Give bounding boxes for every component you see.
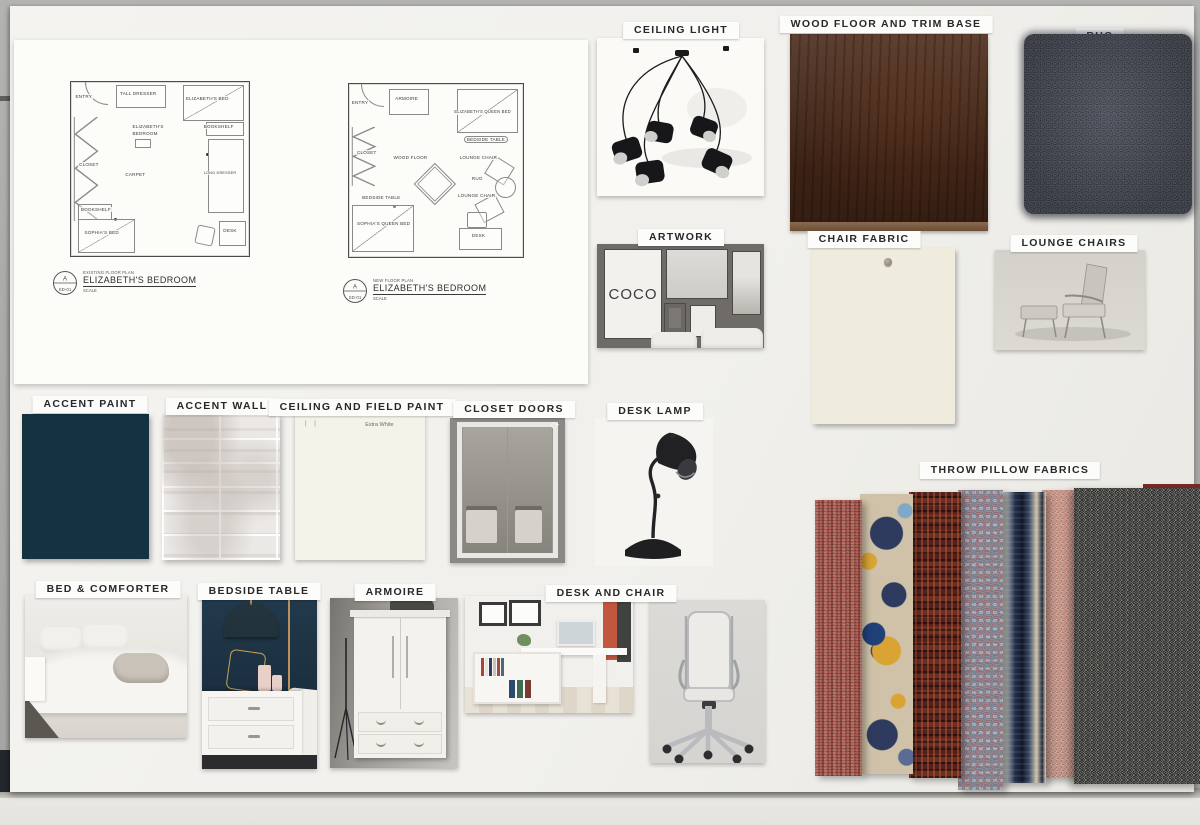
plan-label: RUG <box>471 176 484 181</box>
fabric-swatch-basketweave <box>909 492 961 778</box>
landscape-print <box>733 252 760 314</box>
existing-floor-plan: ENTRY TALL DRESSER ELIZABETH'S BED BOOKS… <box>70 81 250 257</box>
svg-text:A: A <box>353 285 357 291</box>
plan-label: BEDSIDE TABLE <box>361 195 401 200</box>
elizabeths-bed-outline <box>183 85 244 120</box>
closet-doors-photo: ⟳ <box>450 418 565 563</box>
fabric-swatch-floral-medallion <box>860 494 913 774</box>
closet-frame <box>457 422 558 558</box>
rug-sample <box>1024 34 1192 214</box>
svg-text:A: A <box>63 277 67 283</box>
ceiling-field-paint-card: | | Extra White <box>295 414 425 560</box>
pendant-cord <box>288 595 290 691</box>
books <box>481 658 504 676</box>
label-ceiling-field-paint: CEILING AND FIELD PAINT <box>269 399 456 416</box>
drawer <box>358 734 442 754</box>
existing-plan-title-block: A SD-01 EXISTING FLOOR PLAN ELIZABETH'S … <box>52 270 196 296</box>
plan-label: DESK <box>471 233 486 238</box>
white-shelf-unit <box>473 652 561 704</box>
title-text-column: NEW FLOOR PLAN ELIZABETH'S BEDROOM SCALE <box>373 278 486 301</box>
plan-label: ELIZABETH'S BED <box>185 96 230 101</box>
office-chair-photo <box>650 600 765 763</box>
book <box>501 658 504 676</box>
fabric-swatch-ikat-stripe <box>999 492 1046 783</box>
pink-candle <box>258 665 271 691</box>
plan-scale: SCALE <box>83 288 196 293</box>
plan-label: CARPET <box>124 172 146 177</box>
desk-leg-panel <box>593 655 606 703</box>
bedside-table-photo <box>202 595 317 769</box>
horse-print <box>667 250 727 298</box>
wood-floor-sample <box>790 34 988 222</box>
plan-label: CLOSET <box>78 162 100 167</box>
label-armoire: ARMOIRE <box>355 584 436 601</box>
throw-blanket <box>113 653 169 683</box>
nightstand <box>25 657 45 701</box>
cup-pull <box>376 741 386 747</box>
book <box>485 658 488 676</box>
binder <box>509 680 515 698</box>
desk-chair-outline <box>194 225 216 248</box>
plan-label: LONG DRESSER <box>203 171 238 175</box>
title-text-column: EXISTING FLOOR PLAN ELIZABETH'S BEDROOM … <box>83 270 196 293</box>
desk-photo <box>465 596 633 713</box>
mood-board: ENTRY TALL DRESSER ELIZABETH'S BED BOOKS… <box>10 6 1194 792</box>
drawing-mark-icon: A SD-01 <box>52 270 78 296</box>
rotate-view-icon: ⟳ <box>549 421 561 433</box>
office-chair-drawing <box>650 600 765 763</box>
label-bedside-table: BEDSIDE TABLE <box>198 583 321 600</box>
door-handle <box>406 636 408 678</box>
room-tag: ELIZABETH'S <box>132 124 165 129</box>
drawer-pull <box>248 707 260 710</box>
door-handle <box>392 636 394 678</box>
label-bed-comforter: BED & COMFORTER <box>36 581 181 598</box>
wall-frame <box>509 600 541 626</box>
label-desk-and-chair: DESK AND CHAIR <box>546 585 677 602</box>
side-table-circle <box>495 177 516 198</box>
fabric-swatch-geometric-lattice <box>958 490 1003 790</box>
plan-label: BOOKSHELF <box>203 124 235 129</box>
label-wood-floor: WOOD FLOOR AND TRIM BASE <box>780 16 993 33</box>
plan-label: TALL DRESSER <box>119 91 157 96</box>
paint-card-marks: | | <box>305 421 319 427</box>
cup-pull <box>376 719 386 725</box>
plan-title: ELIZABETH'S BEDROOM <box>373 283 486 295</box>
plan-label: ELIZABETH'S QUEEN BED <box>453 110 511 115</box>
pillow <box>651 332 697 348</box>
sophias-queen-bed-outline <box>352 205 413 252</box>
floor-plan-sheet: ENTRY TALL DRESSER ELIZABETH'S BED BOOKS… <box>14 40 588 384</box>
plan-label: WOOD FLOOR <box>393 155 429 160</box>
mirror-panel-left <box>463 427 507 553</box>
lounge-chairs-photo <box>995 250 1145 350</box>
long-dresser-outline <box>208 139 244 212</box>
plan-label: LOUNGE CHAIR <box>457 193 496 198</box>
armoire-photo <box>330 598 458 768</box>
new-floor-plan: ENTRY ARMOIRE ELIZABETH'S QUEEN BED CLOS… <box>348 83 524 258</box>
new-plan-title-block: A SD-01 NEW FLOOR PLAN ELIZABETH'S BEDRO… <box>342 278 486 304</box>
label-accent-paint: ACCENT PAINT <box>33 396 148 413</box>
white-nightstand <box>202 691 302 755</box>
label-chair-fabric: CHAIR FABRIC <box>808 231 921 248</box>
pillow <box>701 328 763 348</box>
svg-text:SD-01: SD-01 <box>59 287 72 292</box>
wall-frame <box>479 602 507 626</box>
monitor <box>557 620 595 646</box>
desk-lamp-photo <box>595 418 713 566</box>
drawer <box>208 725 294 749</box>
plan-label: CLOSET <box>356 150 378 155</box>
plant <box>517 634 531 646</box>
label-accent-wall: ACCENT WALL <box>166 398 279 415</box>
drawing-mark-icon: A SD-01 <box>342 278 368 304</box>
artwork-photo: COCO <box>597 244 764 348</box>
book <box>481 658 484 676</box>
chair-fabric-sample <box>812 248 955 424</box>
plan-label: SOPHIA'S BED <box>83 230 119 235</box>
plan-label: DESK <box>222 228 237 233</box>
label-closet-doors: CLOSET DOORS <box>453 401 575 418</box>
plan-label: BOOKSHELF <box>80 207 112 212</box>
ledge-surface <box>0 798 1200 825</box>
photo-of-mood-board: { "plan_sheet": { "existing": { "subtitl… <box>0 0 1200 825</box>
door-split <box>400 617 401 709</box>
small-frame <box>665 304 685 332</box>
bed-comforter-photo <box>25 595 187 738</box>
plan-label: BEDSIDE TABLE <box>464 136 508 143</box>
drawer <box>208 697 294 721</box>
mirror-panel-right <box>508 427 552 553</box>
label-throw-pillow-fabrics: THROW PILLOW FABRICS <box>920 462 1100 479</box>
wardrobe-cornice <box>350 610 450 617</box>
accent-wall-brick-sample <box>162 414 280 560</box>
ceiling-light-photo <box>597 38 764 196</box>
tall-dresser-outline <box>116 85 166 108</box>
plan-scale: SCALE <box>373 296 486 301</box>
plan-label: ENTRY <box>75 94 94 99</box>
desk-outline <box>459 228 503 251</box>
room-tag: BEDROOM <box>132 131 159 136</box>
paint-name: Extra White <box>365 422 393 428</box>
mirror-reflection-bed <box>466 510 497 543</box>
plan-label: SOPHIA'S QUEEN BED <box>356 221 411 226</box>
binder <box>517 680 523 698</box>
room-tag-box <box>135 139 151 148</box>
drawer <box>358 712 442 732</box>
armoire-outline <box>389 89 429 115</box>
closet-bifold-doors <box>351 127 377 186</box>
cup-pull <box>414 719 424 725</box>
fabric-swatch-woven-stripe <box>815 500 862 776</box>
lounge-chair-drawing <box>995 250 1145 350</box>
fabric-swatch-tweed <box>1074 488 1200 784</box>
wood-plank-edge <box>790 222 988 231</box>
white-wardrobe <box>354 610 446 758</box>
rug-diamond <box>414 163 456 205</box>
patterned-pendant-shade <box>224 603 278 637</box>
label-artwork: ARTWORK <box>638 229 724 246</box>
throw-pillow-fabric-stack <box>803 484 1200 794</box>
label-lounge-chairs: LOUNGE CHAIRS <box>1011 235 1138 252</box>
plan-label: ENTRY <box>351 100 370 105</box>
sophias-bed-outline <box>78 219 135 252</box>
mirror-reflection-bed <box>515 510 541 543</box>
desk-outline <box>219 221 246 246</box>
book <box>489 658 492 676</box>
plan-label: LOUNGE CHAIR <box>459 155 498 160</box>
cup-pull <box>414 741 424 747</box>
pink-candle <box>272 675 282 691</box>
svg-text:SD-01: SD-01 <box>349 295 362 300</box>
accent-paint-swatch <box>22 414 149 559</box>
book <box>493 658 496 676</box>
dark-floor <box>202 755 317 769</box>
drawer-pull <box>248 735 260 738</box>
pendant-light-drawing <box>597 38 764 196</box>
book <box>497 658 500 676</box>
binder <box>525 680 531 698</box>
desk-lamp-drawing <box>595 418 713 566</box>
coco-poster: COCO <box>605 250 661 338</box>
push-pin <box>884 258 892 266</box>
plan-title: ELIZABETH'S BEDROOM <box>83 275 196 287</box>
poster-text: COCO <box>609 286 658 303</box>
label-desk-lamp: DESK LAMP <box>607 403 703 420</box>
plan-label: ARMOIRE <box>394 96 419 101</box>
desk-chair-outline <box>467 212 486 228</box>
label-ceiling-light: CEILING LIGHT <box>623 22 739 39</box>
